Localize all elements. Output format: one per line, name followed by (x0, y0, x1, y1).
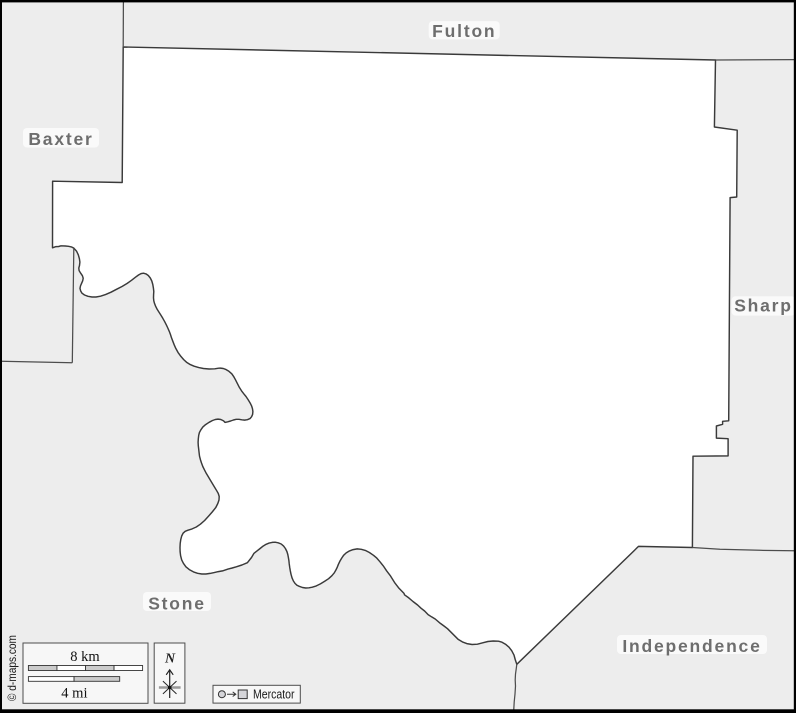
svg-text:Sharp: Sharp (734, 295, 793, 315)
svg-text:Baxter: Baxter (28, 129, 93, 149)
svg-text:Stone: Stone (148, 594, 206, 614)
svg-text:N: N (164, 651, 176, 666)
svg-text:Fulton: Fulton (432, 21, 496, 41)
svg-text:Independence: Independence (622, 636, 761, 656)
svg-text:© d-maps.com: © d-maps.com (5, 635, 19, 701)
svg-text:Mercator: Mercator (253, 687, 295, 702)
svg-text:4 mi: 4 mi (61, 686, 87, 702)
svg-text:8 km: 8 km (70, 649, 100, 665)
